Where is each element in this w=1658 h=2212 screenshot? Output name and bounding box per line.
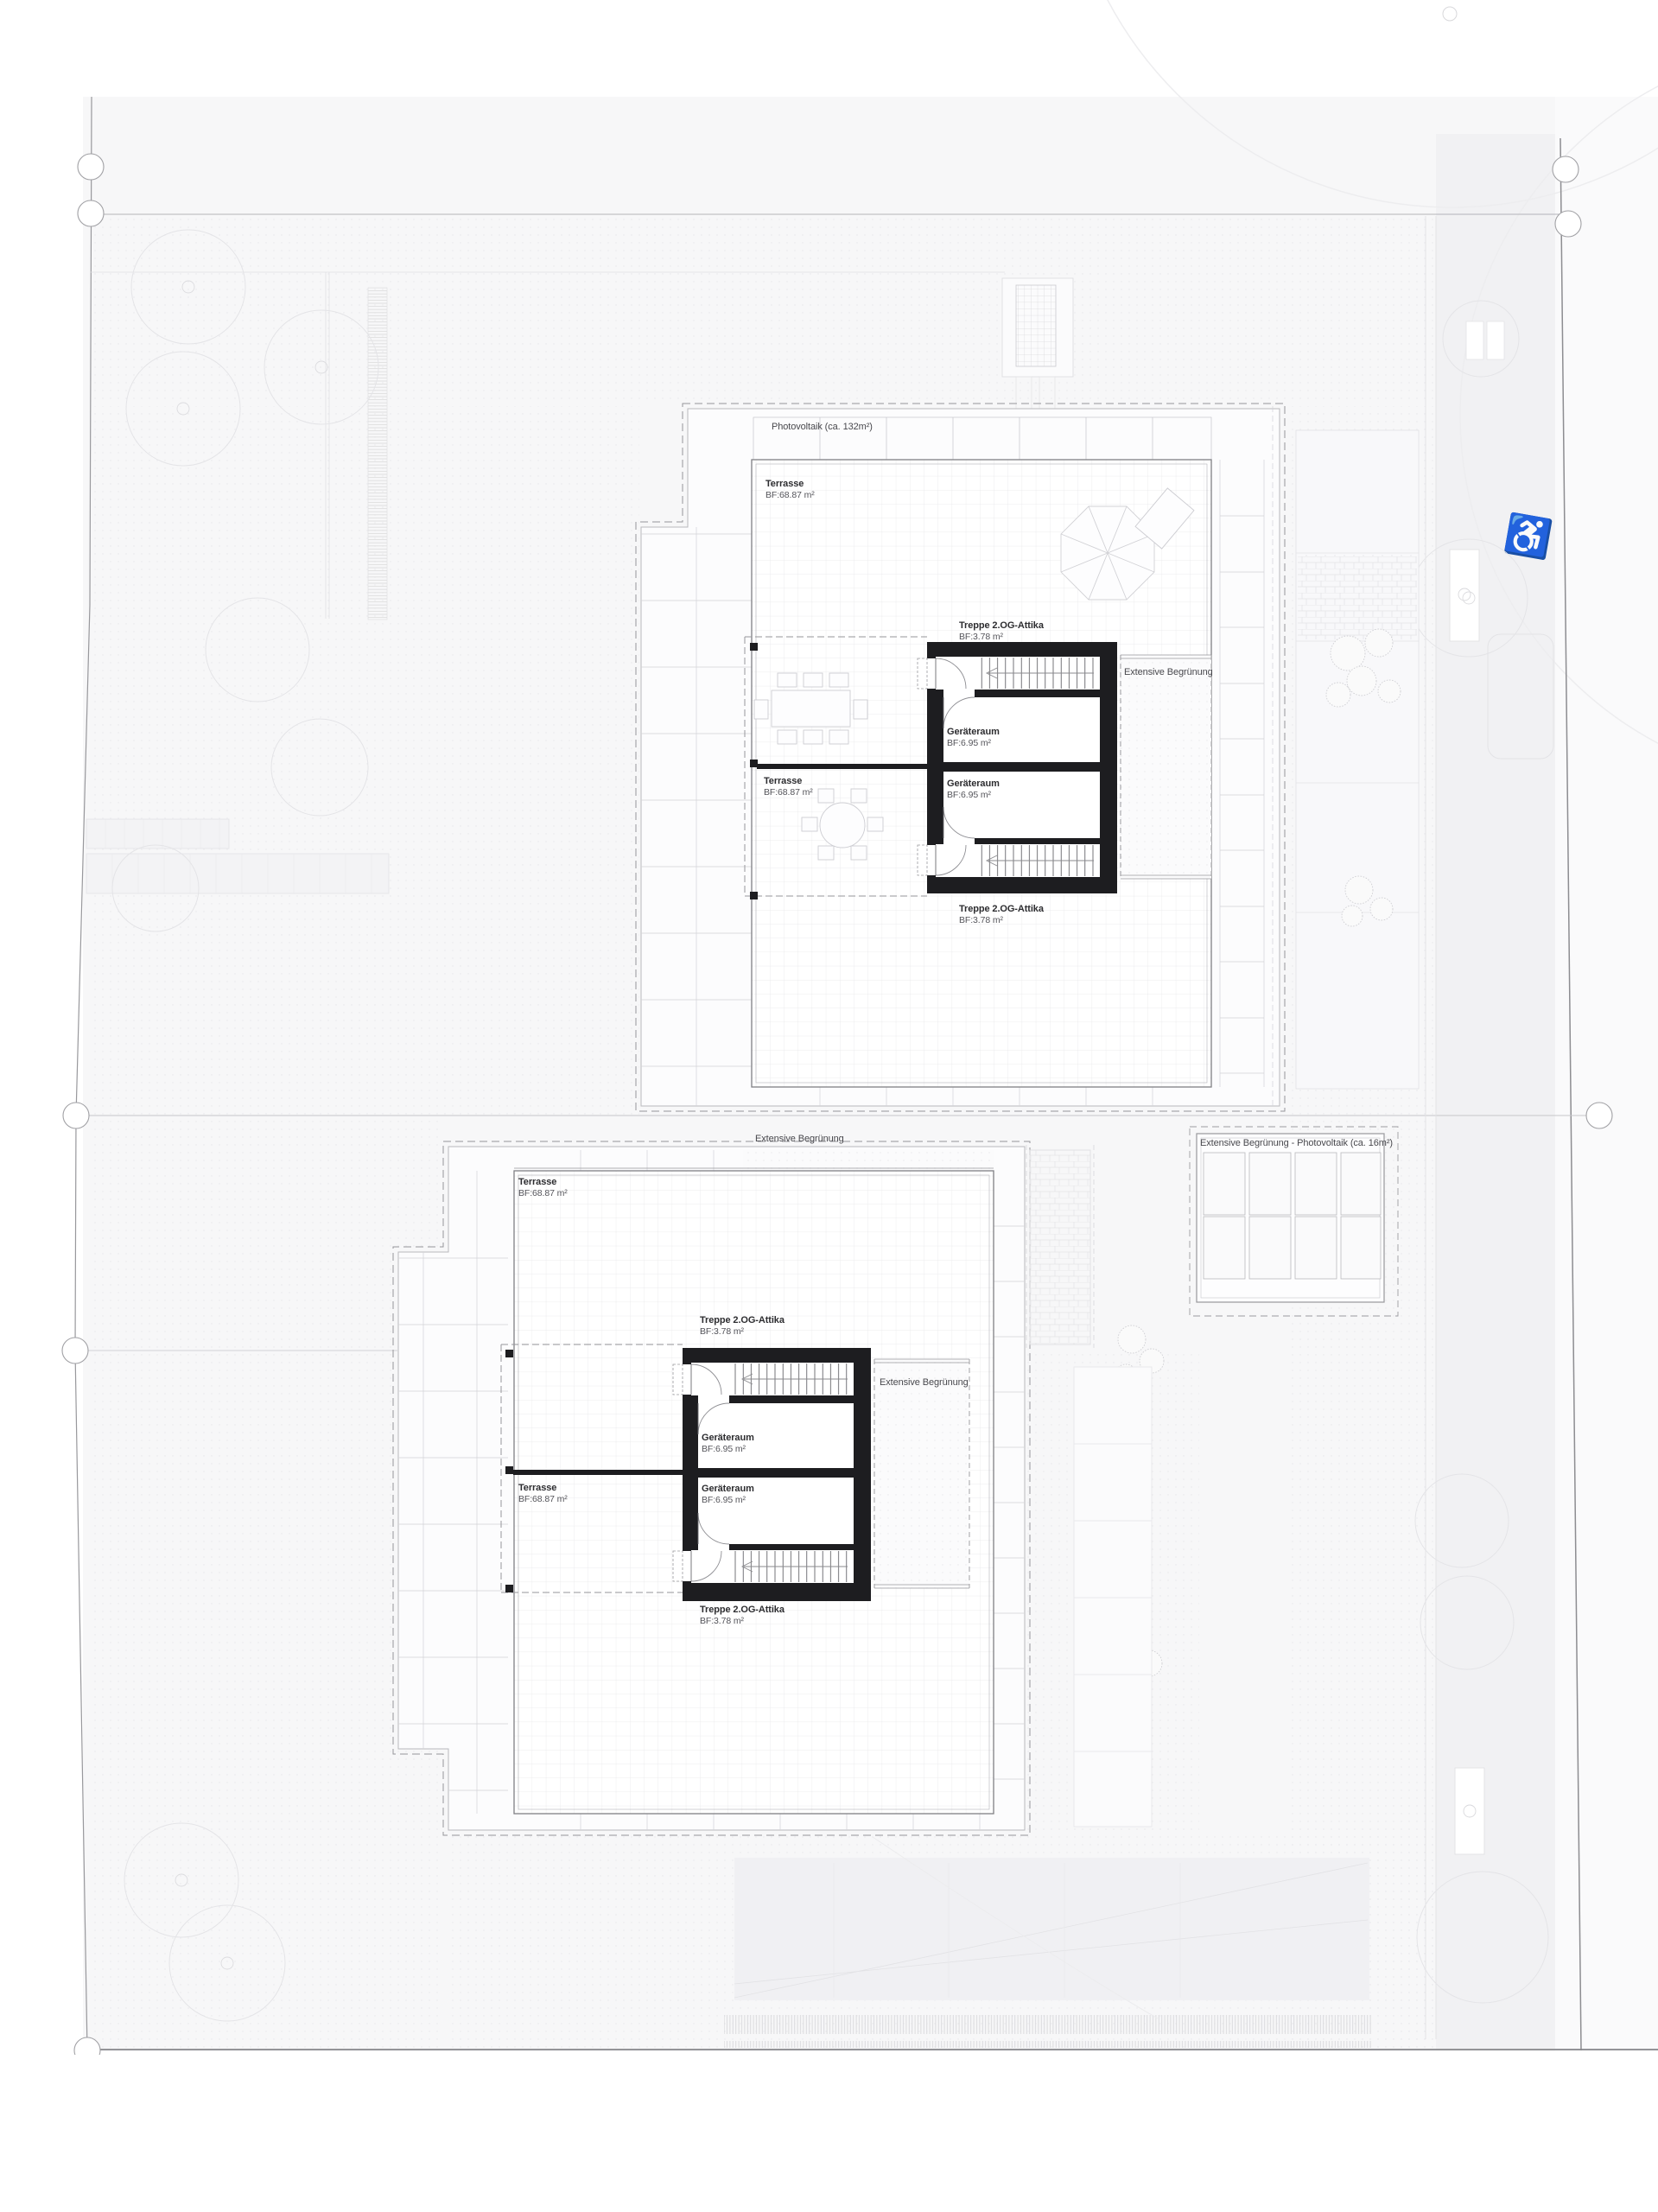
brick-strip (1026, 1145, 1094, 1348)
east-garden-beds (1296, 430, 1419, 1089)
party-wall (513, 1470, 683, 1475)
label-treppe-south-bottom: Treppe 2.OG-AttikaBF:3.78 m² (700, 1605, 785, 1627)
tree-pit (1455, 1768, 1484, 1854)
label-geraeteraum-north-1: GeräteraumBF:6.95 m² (947, 727, 1000, 749)
label-treppe-south-top: Treppe 2.OG-AttikaBF:3.78 m² (700, 1315, 785, 1338)
dining-table (772, 690, 850, 727)
label-photovoltaik-roof: Photovoltaik (ca. 132m²) (772, 418, 873, 434)
garage-ramp (724, 1837, 1372, 2048)
paper-margin (0, 2055, 1658, 2212)
label-geraeteraum-south-1: GeräteraumBF:6.95 m² (702, 1433, 754, 1455)
label-terrasse-north-1: TerrasseBF:68.87 m² (765, 479, 815, 501)
label-terrasse-south-1: TerrasseBF:68.87 m² (518, 1177, 568, 1199)
label-treppe-north-top: Treppe 2.OG-AttikaBF:3.78 m² (959, 620, 1044, 643)
wheelchair-icon: ♿ (1501, 511, 1555, 562)
tree-pit (1450, 550, 1479, 641)
survey-marker (1443, 7, 1457, 21)
south-path-column (1074, 1367, 1152, 1827)
planting-bed (86, 854, 389, 893)
green-roof-south (874, 1359, 969, 1588)
label-extensive-south-top: Extensive Begrünung (755, 1130, 844, 1146)
label-geraeteraum-north-2: GeräteraumBF:6.95 m² (947, 779, 1000, 801)
grating-strip (724, 2015, 1372, 2048)
street-strip (1436, 134, 1555, 2050)
hedge-row (368, 288, 387, 620)
label-extensive-north: Extensive Begrünung (1124, 664, 1213, 679)
label-terrasse-south-2: TerrasseBF:68.87 m² (518, 1483, 568, 1505)
party-wall (757, 764, 927, 769)
street-furniture (1487, 321, 1504, 359)
label-geraeteraum-south-2: GeräteraumBF:6.95 m² (702, 1484, 754, 1506)
planting-bed (86, 819, 229, 849)
round-table (820, 803, 865, 848)
roof-plan-drawing: ♿ (0, 0, 1658, 2212)
label-extensive-pv-garage: Extensive Begrünung - Photovoltaik (ca. … (1200, 1135, 1393, 1150)
stair-core-north (918, 642, 1117, 893)
building-north (636, 404, 1285, 1111)
stair-core-south (673, 1348, 871, 1601)
label-extensive-south: Extensive Begrünung (880, 1374, 969, 1389)
street-furniture (1466, 321, 1483, 359)
label-terrasse-north-2: TerrasseBF:68.87 m² (764, 776, 813, 798)
garage-pv-roof (1190, 1127, 1398, 1316)
label-treppe-north-bottom: Treppe 2.OG-AttikaBF:3.78 m² (959, 904, 1044, 926)
green-roof-north (1121, 655, 1211, 879)
